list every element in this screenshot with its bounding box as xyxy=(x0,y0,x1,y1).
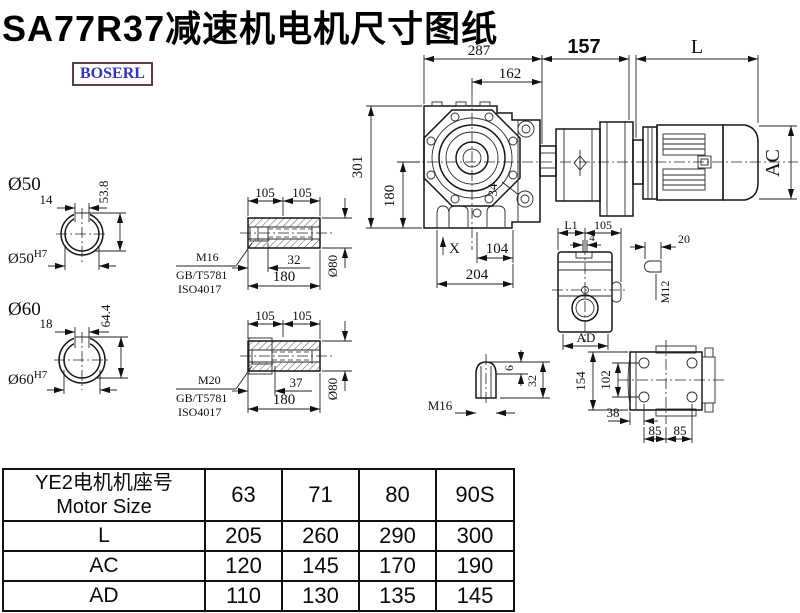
main-assembly-view: 287 162 157 L 301 180 AC xyxy=(350,36,798,288)
shaft60-title: Ø60 xyxy=(8,299,41,320)
dim-204: 204 xyxy=(466,267,489,283)
row-label-AC: AC xyxy=(3,551,205,581)
col-header-71: 71 xyxy=(282,469,359,521)
dim-dia-a: Ø80 xyxy=(325,255,340,277)
row-label-AD: AD xyxy=(3,581,205,611)
dim-180: 180 xyxy=(382,185,398,208)
row-label-L: L xyxy=(3,521,205,551)
dim-105a-a: 105 xyxy=(255,185,275,200)
dim-38: 38 xyxy=(607,405,620,420)
rear-cover-view: 154 102 38 85 85 xyxy=(573,340,726,443)
output-shaft-50-view: Ø50 14 53.8 Ø50H7 xyxy=(8,174,126,270)
value-AC-71: 145 xyxy=(282,551,359,581)
dim-AC: AC xyxy=(762,149,784,177)
col-header-90S: 90S xyxy=(436,469,514,521)
table-header-motor-size: YE2电机机座号 Motor Size xyxy=(3,469,205,521)
dim-85a: 85 xyxy=(649,423,662,438)
header-line1: YE2电机机座号 xyxy=(4,471,204,495)
dim-162: 162 xyxy=(499,66,522,82)
value-L-63: 205 xyxy=(205,521,282,551)
value-L-90S: 300 xyxy=(436,521,514,551)
drawing-sheet: SA77R37减速机电机尺寸图纸 BOSERL xyxy=(0,0,800,613)
dim-287: 287 xyxy=(468,43,491,59)
dim-301: 301 xyxy=(350,156,366,179)
plug-thread-label: M16 xyxy=(428,398,453,413)
value-AC-63: 120 xyxy=(205,551,282,581)
value-L-80: 290 xyxy=(359,521,436,551)
dim-105a-b: 105 xyxy=(255,308,275,323)
dim-key-len-b: 37 xyxy=(290,375,304,390)
dim-plug-len: 32 xyxy=(525,375,539,387)
dim-85b: 85 xyxy=(674,423,687,438)
dim-key-depth-50: 53.8 xyxy=(96,181,111,204)
value-AD-71: 130 xyxy=(282,581,359,611)
dim-105-side: 105 xyxy=(594,218,612,232)
value-L-71: 260 xyxy=(282,521,359,551)
dim-key-depth-60: 64.4 xyxy=(98,304,113,327)
dim-X: X xyxy=(449,241,460,257)
dim-L1: L1 xyxy=(564,218,577,232)
header-line2: Motor Size xyxy=(4,495,204,519)
output-shaft-60-view: Ø60 18 64.4 Ø60H7 xyxy=(8,299,128,394)
dim-180-b: 180 xyxy=(273,392,296,408)
key-detail-view: 20 M12 xyxy=(630,232,690,303)
bore-label-50: Ø50H7 xyxy=(8,248,48,267)
col-header-80: 80 xyxy=(359,469,436,521)
value-AD-90S: 145 xyxy=(436,581,514,611)
technical-drawing: 287 162 157 L 301 180 AC xyxy=(0,0,800,467)
std-iso-a: ISO4017 xyxy=(178,282,221,296)
std-gb-b: GB/T5781 xyxy=(176,391,227,405)
dim-102: 102 xyxy=(598,370,613,390)
value-AC-90S: 190 xyxy=(436,551,514,581)
hollow-shaft-a-view: 105 105 M16 GB/T5781 ISO4017 32 180 Ø80 xyxy=(176,185,352,296)
plug-detail-view: M16 6 32 xyxy=(428,350,550,413)
table-header-row: YE2电机机座号 Motor Size 63 71 80 90S xyxy=(3,469,514,521)
motor-size-table: YE2电机机座号 Motor Size 63 71 80 90S L 205 2… xyxy=(2,468,515,612)
hollow-shaft-b-view: 105 105 M20 GB/T5781 ISO4017 37 180 Ø80 xyxy=(176,308,352,419)
value-AC-80: 170 xyxy=(359,551,436,581)
dim-154: 154 xyxy=(573,371,588,391)
dim-34: 34 xyxy=(485,183,500,197)
dim-180-a: 180 xyxy=(273,269,296,285)
dim-20: 20 xyxy=(678,232,690,246)
dim-105b-a: 105 xyxy=(292,185,312,200)
bore-label-60: Ø60H7 xyxy=(8,369,48,388)
dim-key-width-60: 18 xyxy=(40,316,53,331)
dim-157: 157 xyxy=(567,36,600,58)
dim-4: 4 xyxy=(589,232,595,244)
key-thread-label: M12 xyxy=(658,281,672,304)
dim-key-width-50: 14 xyxy=(40,192,54,207)
dim-key-len-a: 32 xyxy=(288,252,301,267)
table-row-L: L 205 260 290 300 xyxy=(3,521,514,551)
table-row-AD: AD 110 130 135 145 xyxy=(3,581,514,611)
thread-label-a: M16 xyxy=(196,250,219,264)
table-row-AC: AC 120 145 170 190 xyxy=(3,551,514,581)
thread-label-b: M20 xyxy=(198,373,221,387)
dim-plug-tip: 6 xyxy=(502,365,516,371)
gearbox-side-view: L1 105 4 AD xyxy=(552,218,628,350)
std-iso-b: ISO4017 xyxy=(178,405,221,419)
dim-dia-b: Ø80 xyxy=(325,378,340,400)
dim-104: 104 xyxy=(486,241,509,257)
std-gb-a: GB/T5781 xyxy=(176,268,227,282)
dim-105b-b: 105 xyxy=(292,308,312,323)
value-AD-63: 110 xyxy=(205,581,282,611)
shaft50-title: Ø50 xyxy=(8,174,41,195)
value-AD-80: 135 xyxy=(359,581,436,611)
col-header-63: 63 xyxy=(205,469,282,521)
dim-AD: AD xyxy=(577,330,596,345)
dim-L: L xyxy=(691,36,703,58)
